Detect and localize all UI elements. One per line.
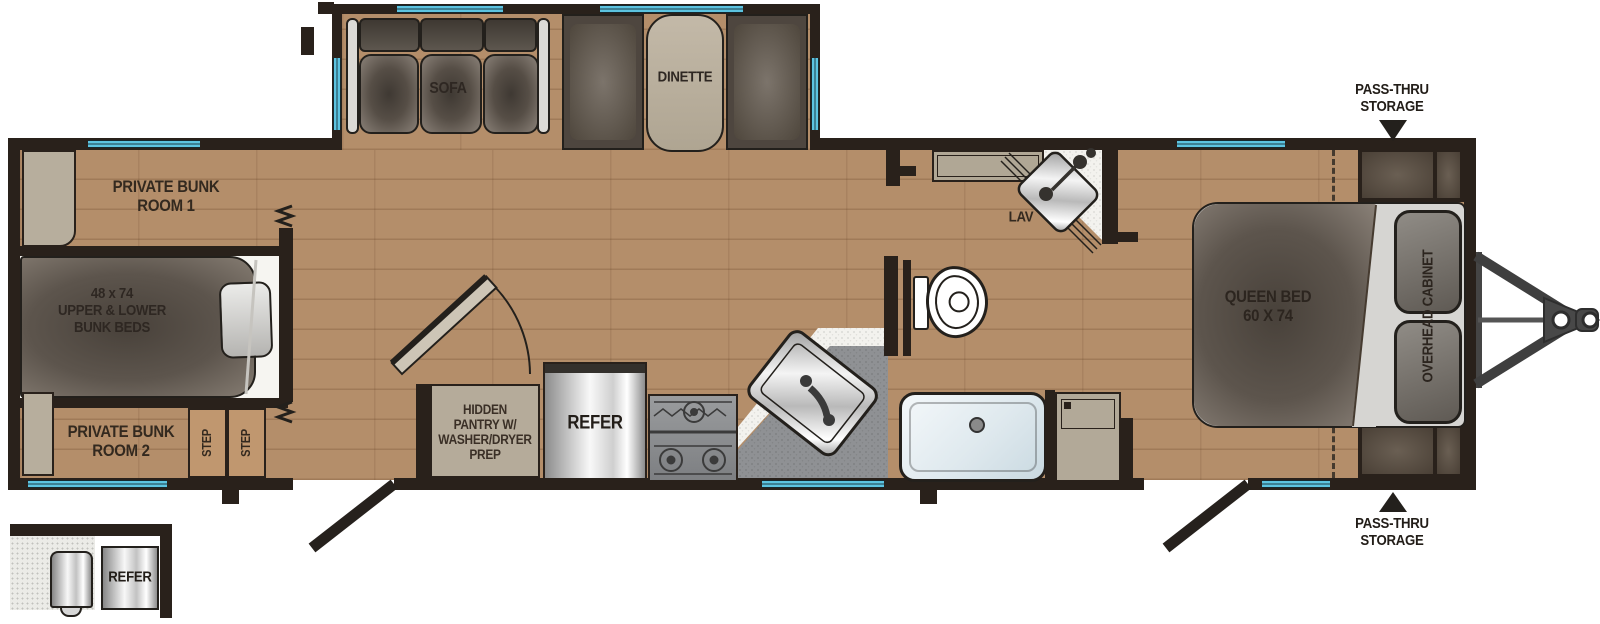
sofa-armrest bbox=[346, 18, 359, 134]
arrow-up-icon bbox=[1379, 492, 1407, 512]
bunkroom-wall bbox=[20, 398, 288, 408]
door-stub bbox=[222, 490, 239, 504]
bath-wall bbox=[1116, 232, 1138, 242]
bedroom-dresser bbox=[1055, 392, 1121, 482]
entry-door bbox=[312, 484, 394, 548]
window bbox=[28, 480, 167, 488]
label-private-bunk-room-2: PRIVATE BUNK ROOM 2 bbox=[68, 422, 175, 460]
label-overhead-cabinet: OVERHEAD CABINET bbox=[1421, 250, 1438, 383]
bath-wall bbox=[884, 256, 898, 356]
stove bbox=[648, 394, 738, 482]
window bbox=[811, 58, 819, 130]
bathtub bbox=[899, 392, 1047, 482]
label-private-bunk-room-1: PRIVATE BUNK ROOM 1 bbox=[113, 177, 220, 215]
wardrobe bbox=[22, 150, 76, 247]
door-stub bbox=[920, 490, 937, 504]
window bbox=[600, 5, 743, 13]
window bbox=[762, 480, 884, 488]
bunkroom-partition bbox=[279, 228, 293, 402]
sofa-back-cushion bbox=[420, 18, 484, 52]
hitch-icon bbox=[1476, 252, 1598, 388]
label-step-2: STEP bbox=[239, 429, 253, 457]
bath-wall bbox=[898, 166, 916, 176]
pass-thru-storage-compartment bbox=[1358, 424, 1464, 478]
label-bunk-beds: 48 x 74 UPPER & LOWER BUNK BEDS bbox=[58, 286, 166, 336]
slideout-corner-trim-top bbox=[318, 2, 334, 14]
entry-door bbox=[1166, 484, 1248, 548]
bunkroom-wall bbox=[20, 246, 288, 256]
label-queen-bed: QUEEN BED 60 X 74 bbox=[1225, 287, 1312, 325]
slideout-corner-trim-left bbox=[301, 27, 314, 55]
bath-wall bbox=[1045, 390, 1055, 482]
bath-sliding-door bbox=[903, 260, 911, 356]
window bbox=[1177, 140, 1285, 148]
wardrobe bbox=[22, 392, 54, 476]
label-pass-thru-storage-top: PASS-THRU STORAGE bbox=[1355, 82, 1429, 116]
window bbox=[88, 140, 200, 148]
griddle-foot bbox=[60, 608, 82, 617]
inset-border bbox=[160, 524, 172, 618]
drawer-handle bbox=[1064, 402, 1071, 409]
pass-thru-storage-compartment bbox=[1358, 148, 1464, 202]
sofa-seat-cushion bbox=[483, 54, 539, 134]
window bbox=[1262, 480, 1330, 488]
label-step-1: STEP bbox=[200, 429, 214, 457]
label-pass-thru-storage-bottom: PASS-THRU STORAGE bbox=[1355, 516, 1429, 550]
sofa-back-cushion bbox=[359, 18, 420, 52]
exterior-griddle bbox=[50, 551, 93, 608]
label-exterior-refer: REFER bbox=[108, 570, 151, 587]
window bbox=[333, 58, 341, 130]
pantry-wall bbox=[416, 384, 430, 478]
label-dinette: DINETTE bbox=[658, 70, 713, 87]
lav-cabinet bbox=[932, 150, 1044, 182]
bunk-pillow bbox=[219, 281, 274, 359]
window bbox=[397, 5, 503, 13]
rv-floorplan: PRIVATE BUNK ROOM 1 48 x 74 UPPER & LOWE… bbox=[0, 0, 1600, 624]
left-wall bbox=[8, 138, 20, 490]
label-sofa: SOFA bbox=[429, 80, 466, 98]
sofa-back-cushion bbox=[484, 18, 537, 52]
tub-drain bbox=[969, 417, 985, 433]
dinette-bench-cushion bbox=[734, 24, 800, 140]
dinette-bench-cushion bbox=[570, 24, 636, 140]
label-refer: REFER bbox=[567, 412, 622, 433]
refrigerator-top-cap bbox=[545, 364, 645, 373]
sofa-seat-cushion bbox=[359, 54, 419, 134]
bath-wall bbox=[1102, 148, 1118, 244]
label-lav: LAV bbox=[1009, 210, 1034, 227]
label-hidden-pantry: HIDDEN PANTRY W/ WASHER/DRYER PREP bbox=[438, 402, 531, 462]
inset-border bbox=[10, 524, 172, 536]
bedroom-wall bbox=[1119, 418, 1133, 480]
